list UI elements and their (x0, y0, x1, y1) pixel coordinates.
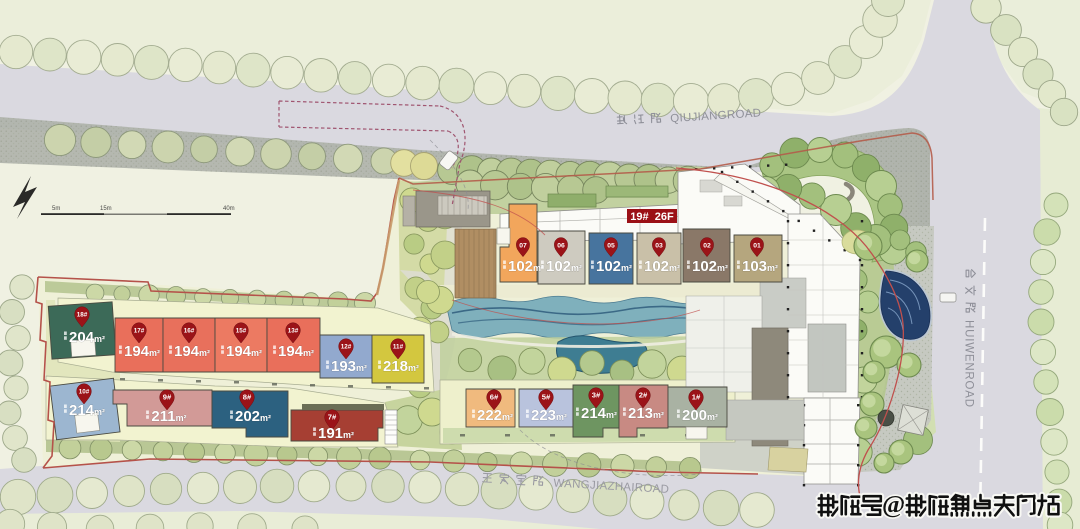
svg-text:19# 26F: 19# 26F (630, 211, 674, 223)
svg-text:03: 03 (655, 242, 663, 249)
svg-text:HUIWENROAD: HUIWENROAD (963, 320, 975, 408)
svg-text:6#: 6# (490, 393, 499, 402)
svg-text:17#: 17# (134, 328, 145, 335)
svg-text:07: 07 (519, 242, 527, 249)
svg-text:7#: 7# (328, 413, 337, 422)
svg-text:9#: 9# (163, 393, 172, 402)
svg-text:02: 02 (703, 242, 711, 249)
svg-text:5#: 5# (542, 393, 551, 402)
svg-text:3#: 3# (592, 391, 601, 400)
svg-text:1#: 1# (692, 393, 701, 402)
svg-text:06: 06 (557, 242, 565, 249)
svg-text:18#: 18# (77, 312, 88, 319)
svg-text:01: 01 (753, 242, 761, 249)
svg-text:13#: 13# (288, 328, 299, 335)
svg-text:16#: 16# (184, 328, 195, 335)
svg-text:11#: 11# (393, 344, 404, 351)
svg-text:2#: 2# (639, 391, 648, 400)
svg-text:@: @ (882, 492, 905, 519)
svg-text:15#: 15# (236, 328, 247, 335)
svg-text:12#: 12# (341, 344, 352, 351)
svg-text:8#: 8# (243, 393, 252, 402)
svg-text:15m: 15m (100, 206, 112, 212)
svg-text:10#: 10# (79, 389, 90, 396)
svg-text:5m: 5m (52, 206, 60, 212)
svg-text:05: 05 (607, 242, 615, 249)
svg-text:40m: 40m (223, 206, 235, 212)
